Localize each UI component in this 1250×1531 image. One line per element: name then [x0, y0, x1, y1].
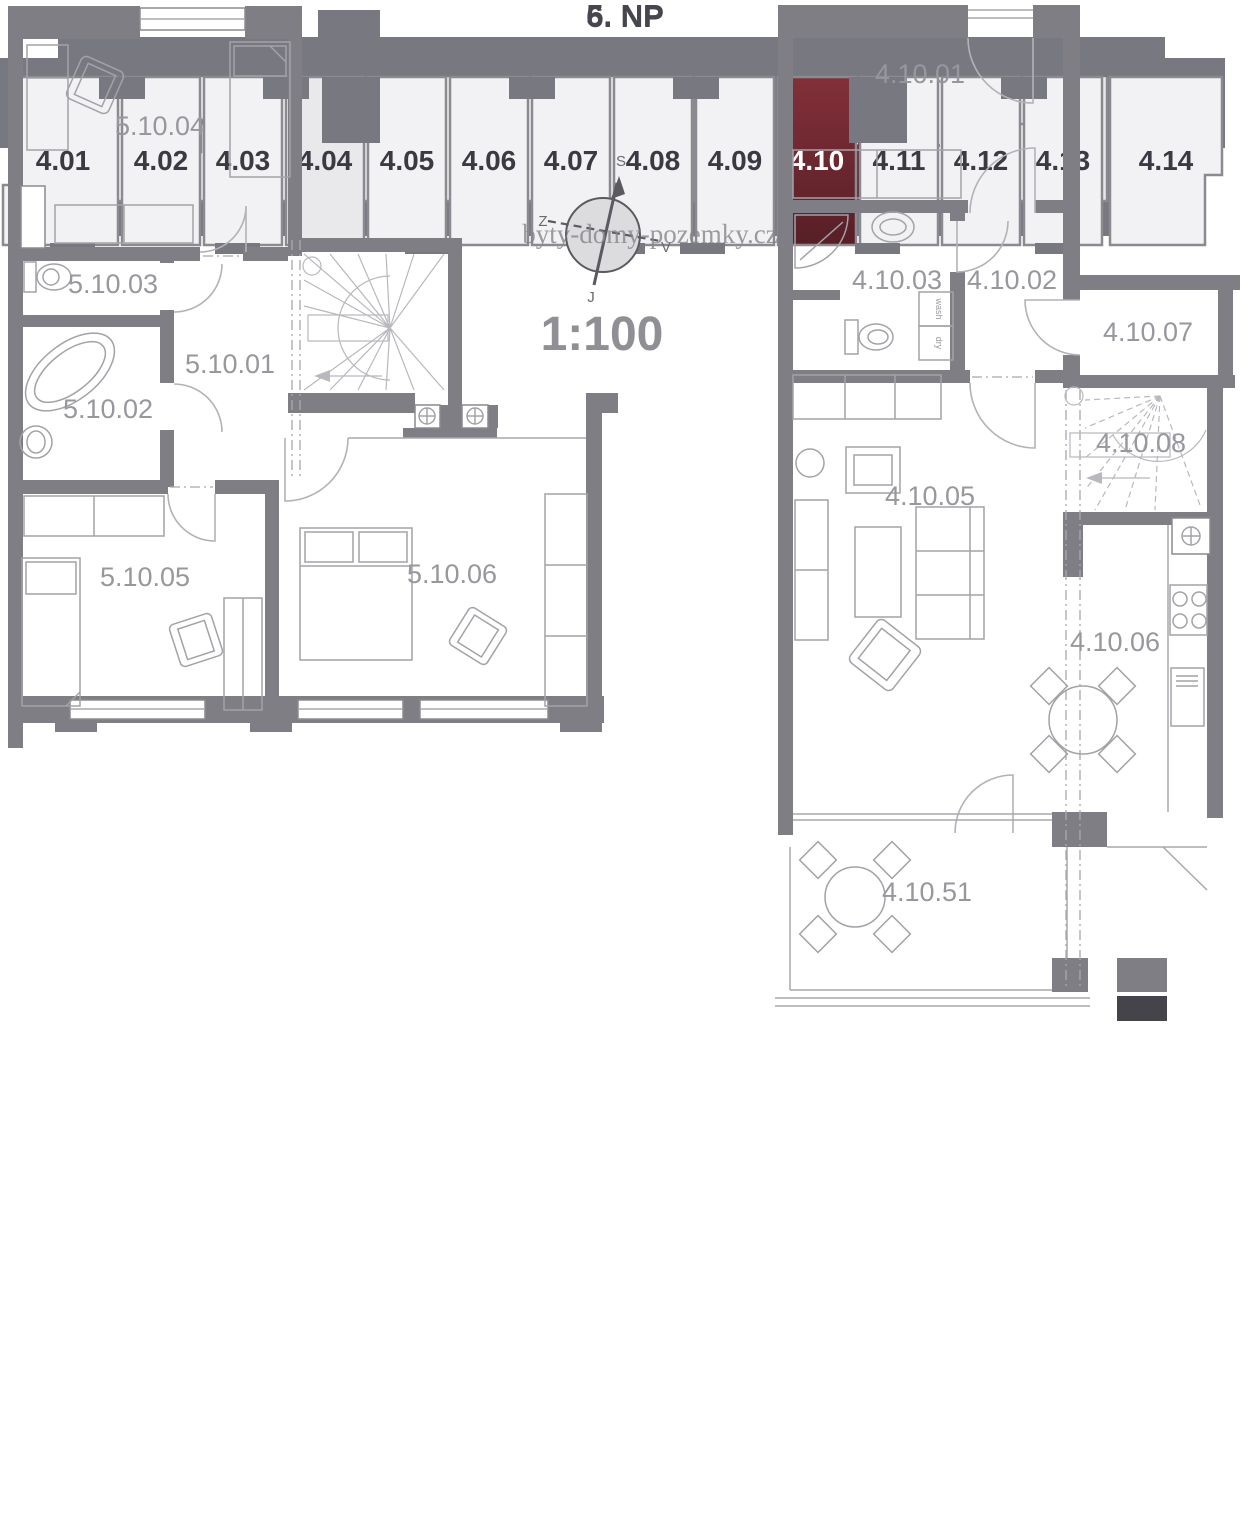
- room-label-5-10-03: 5.10.03: [68, 269, 158, 299]
- left-plan-windows: [21, 8, 548, 719]
- right-plan-furniture: [793, 150, 984, 693]
- watermark: byty-domy-pozemky.cz: [522, 219, 777, 249]
- right-plan-dark-block: [1117, 996, 1167, 1021]
- right-plan-doors: [955, 10, 1080, 833]
- room-label-5-10-02: 5.10.02: [63, 394, 153, 424]
- detail-plans: 5.10.04 5.10.03 5.10.02 5.10.01 5.10.05 …: [0, 0, 1250, 1021]
- left-plan-walls: [8, 6, 618, 748]
- right-plan-room-labels: 4.10.01 4.10.03 4.10.02 4.10.07 4.10.08 …: [852, 59, 1193, 907]
- room-label-5-10-04: 5.10.04: [115, 111, 205, 141]
- room-label-4-10-05: 4.10.05: [885, 481, 975, 511]
- room-label-4-10-51: 4.10.51: [882, 877, 972, 907]
- room-label-4-10-06: 4.10.06: [1070, 627, 1160, 657]
- room-label-4-10-08: 4.10.08: [1096, 428, 1186, 458]
- room-label-5-10-06: 5.10.06: [407, 559, 497, 589]
- room-label-4-10-02: 4.10.02: [967, 265, 1057, 295]
- compass-north-arrow-icon: [611, 176, 625, 199]
- compass-south-label: J: [587, 289, 595, 306]
- room-label-4-10-07: 4.10.07: [1103, 317, 1193, 347]
- scale-label: 1:100: [541, 308, 664, 361]
- left-plan-room-labels: 5.10.04 5.10.03 5.10.02 5.10.01 5.10.05 …: [63, 111, 497, 592]
- left-plan-5-10: 5.10.04 5.10.03 5.10.02 5.10.01 5.10.05 …: [8, 6, 618, 748]
- compass-north-label: S: [616, 153, 626, 170]
- dryer-label: dry: [934, 337, 944, 350]
- room-label-5-10-05: 5.10.05: [100, 562, 190, 592]
- room-label-4-10-01: 4.10.01: [875, 59, 965, 89]
- right-plan-kitchen: [1031, 518, 1210, 812]
- floorplan-sheet: 6. NP 4.02 4.03 4.04 4.05 4.06 4.07 4.08…: [0, 0, 1250, 1531]
- room-label-4-10-03: 4.10.03: [852, 265, 942, 295]
- left-plan-staircase: [303, 254, 444, 390]
- room-label-5-10-01: 5.10.01: [185, 349, 275, 379]
- right-plan-4-10: wash dry 4.10.01 4.10.03: [775, 5, 1240, 1021]
- washer-label: wash: [934, 297, 944, 319]
